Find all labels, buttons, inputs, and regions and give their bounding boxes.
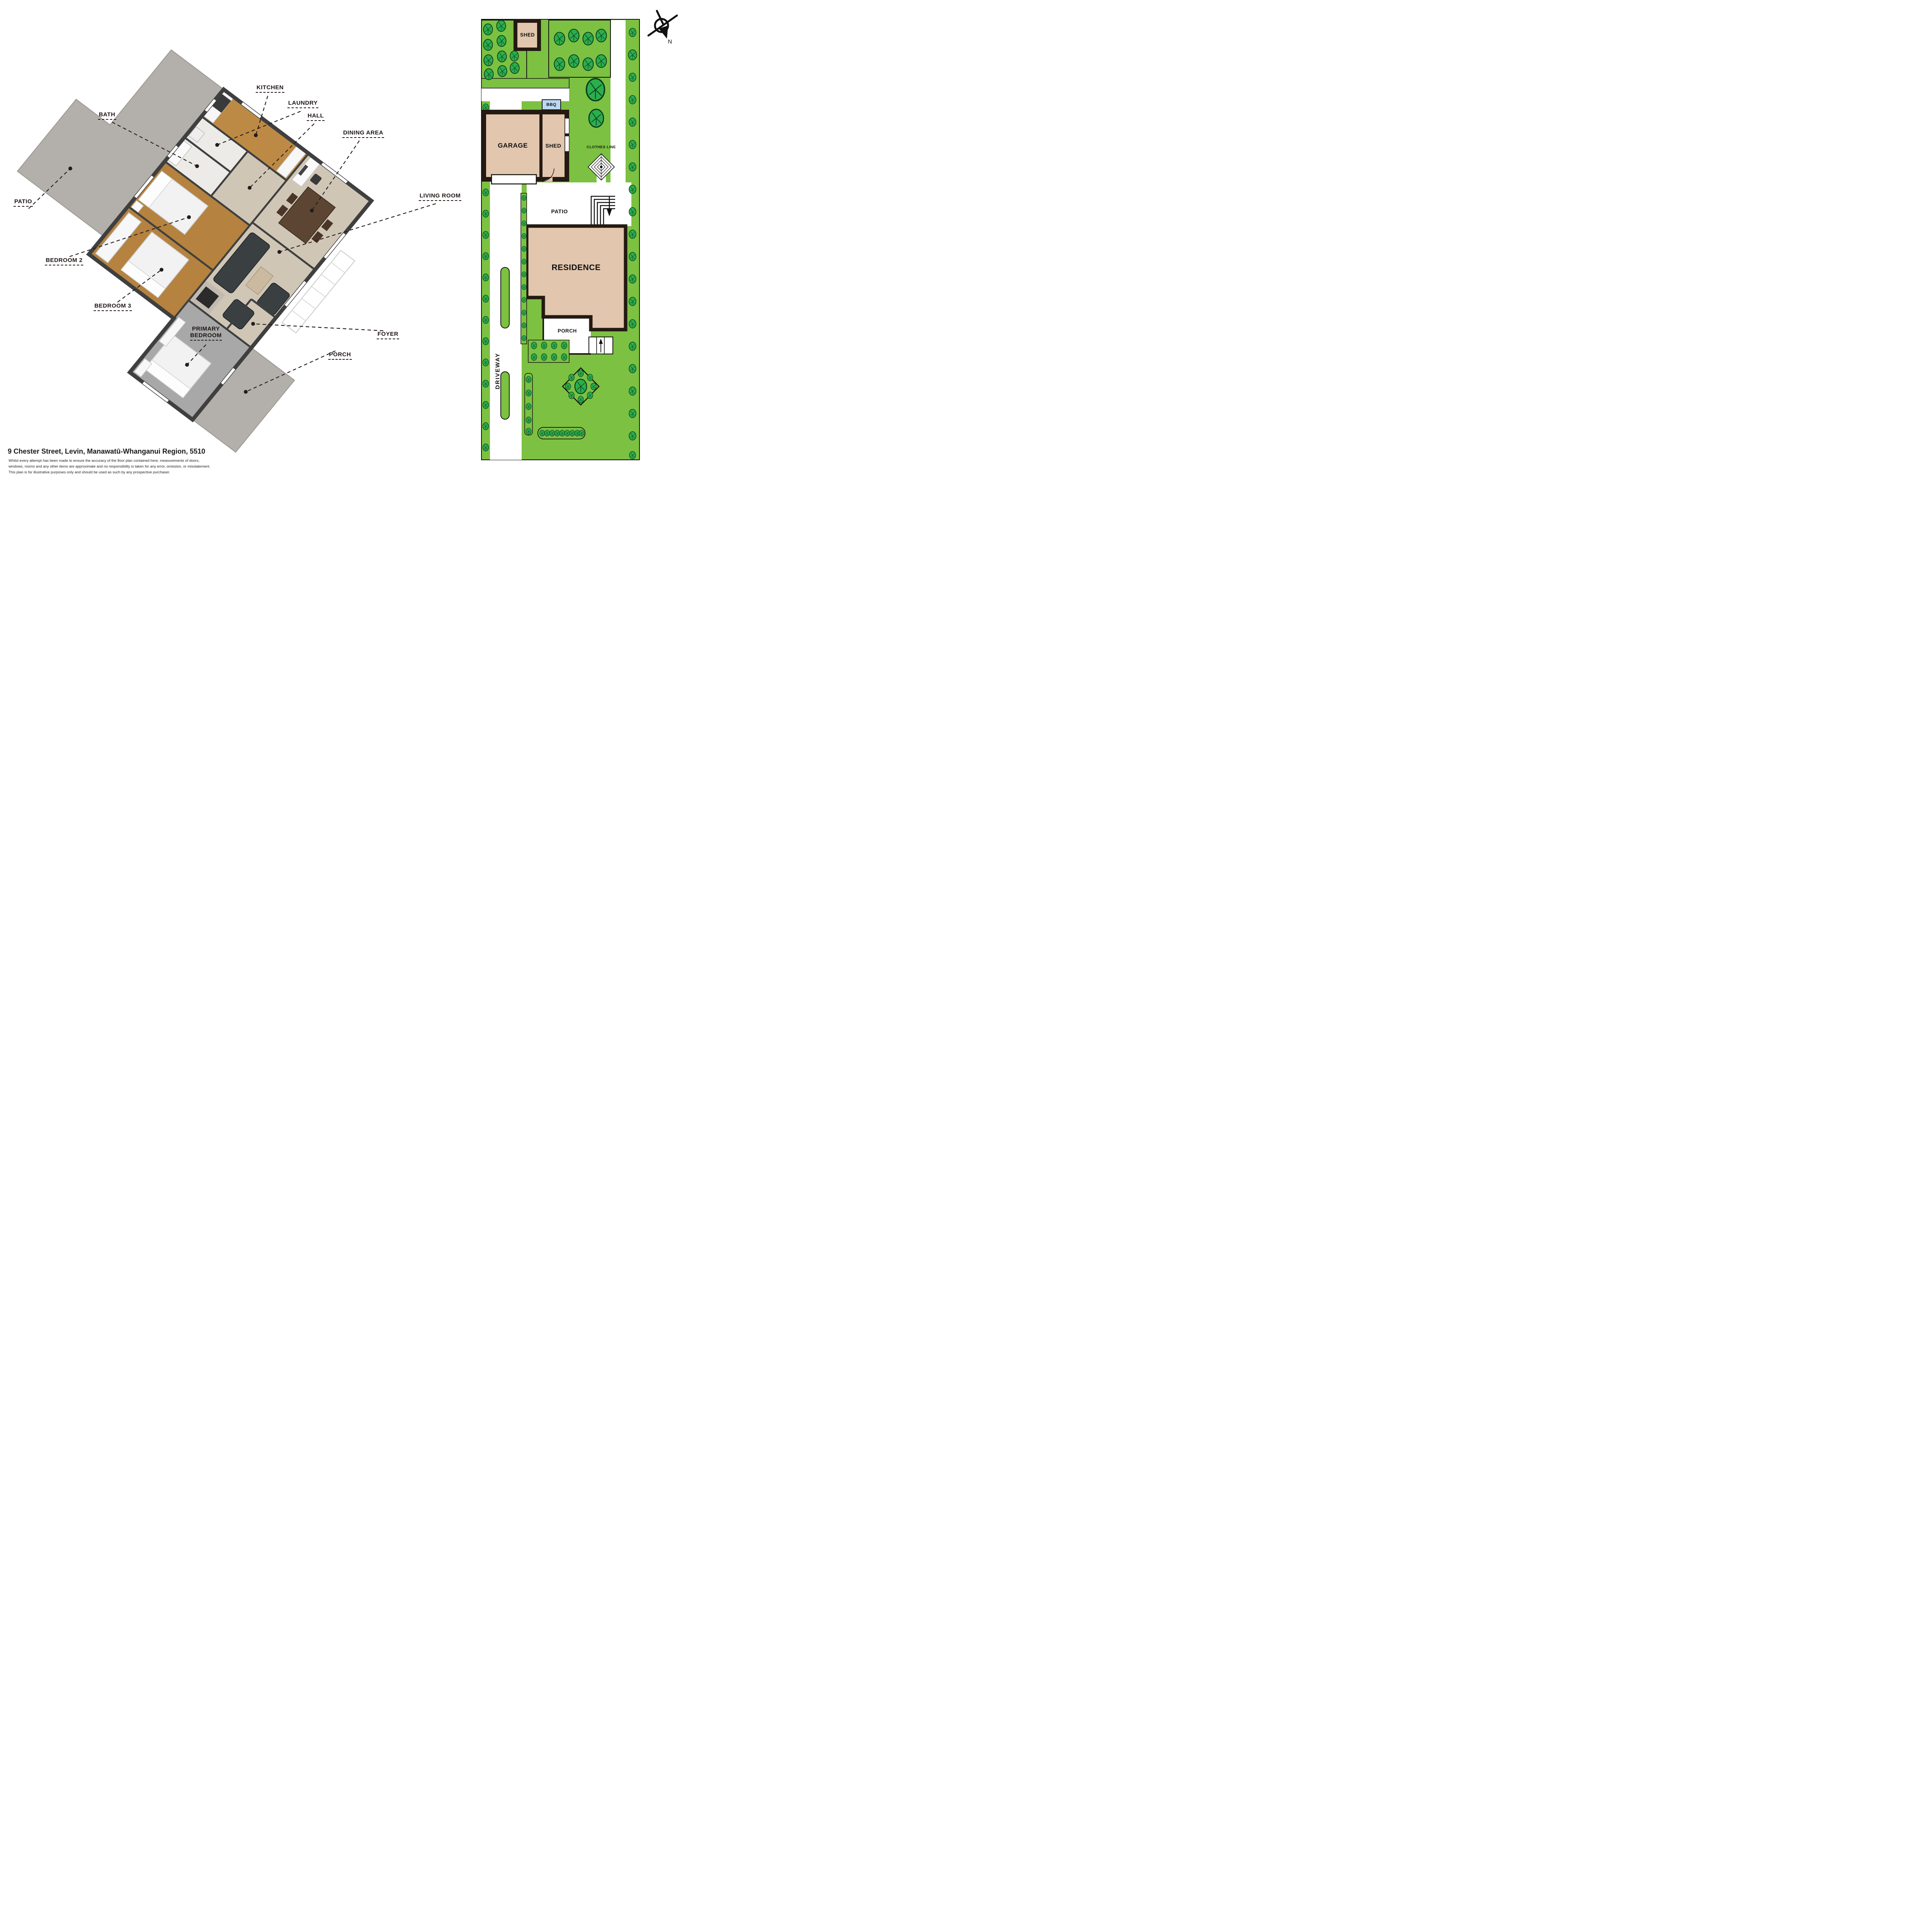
label-site-garage: GARAGE: [498, 142, 528, 150]
property-address: 9 Chester Street, Levin, Manawatū-Whanga…: [8, 447, 205, 456]
floor-plan-3d: [0, 24, 415, 452]
porch-hedge: [528, 340, 569, 362]
label-hall: HALL: [307, 112, 325, 121]
label-bedroom-3: BEDROOM 3: [94, 303, 132, 311]
label-patio: PATIO: [14, 198, 33, 207]
label-compass-north: N: [668, 39, 672, 45]
label-living-room: LIVING ROOM: [419, 192, 461, 201]
label-site-shed: SHED: [546, 143, 561, 149]
front-hedge-strip: [525, 373, 532, 435]
label-primary-bedroom: PRIMARY BEDROOM: [190, 326, 222, 341]
disclaimer-line-2: windows, rooms and any other items are a…: [9, 464, 210, 469]
driveway-island: [501, 372, 509, 419]
disclaimer-text: Whilst every attempt has been made to en…: [9, 458, 210, 476]
label-bedroom-2: BEDROOM 2: [45, 257, 83, 265]
large-tree: [587, 78, 605, 100]
label-site-bbq: BBQ: [546, 102, 556, 107]
rear-path: [481, 88, 569, 101]
label-site-clothes-line: CLOTHES LINE: [587, 145, 616, 150]
label-dining-area: DINING AREA: [342, 129, 384, 138]
rear-patio-surface: [527, 182, 631, 226]
disclaimer-line-3: This plan is for illustrative purposes o…: [9, 469, 210, 475]
garage-door: [492, 175, 536, 184]
label-site-patio: PATIO: [551, 208, 568, 214]
label-porch: PORCH: [328, 351, 352, 360]
label-kitchen: KITCHEN: [256, 84, 284, 93]
plan-graphics: [0, 0, 678, 479]
label-site-residence: RESIDENCE: [551, 263, 600, 272]
large-tree: [589, 109, 604, 127]
floorplan-page: KITCHEN LAUNDRY HALL BATH DINING AREA LI…: [0, 0, 678, 479]
label-foyer: FOYER: [377, 331, 399, 339]
shed-window: [565, 136, 569, 151]
clothesline-path: [611, 20, 626, 186]
site-plan: [481, 19, 639, 460]
label-site-driveway: DRIVEWAY: [495, 353, 501, 390]
green-band: [481, 78, 569, 88]
label-bath: BATH: [98, 111, 116, 120]
driveway-island: [501, 267, 509, 328]
label-laundry: LAUNDRY: [287, 100, 318, 108]
residence-left-hedge: [521, 193, 527, 344]
bottom-hedge-row: [538, 427, 585, 439]
label-site-porch: PORCH: [558, 328, 577, 334]
compass-north-icon: [648, 11, 677, 39]
label-site-shed-top: SHED: [520, 32, 535, 38]
shed-window: [565, 118, 569, 134]
disclaimer-line-1: Whilst every attempt has been made to en…: [9, 458, 210, 464]
